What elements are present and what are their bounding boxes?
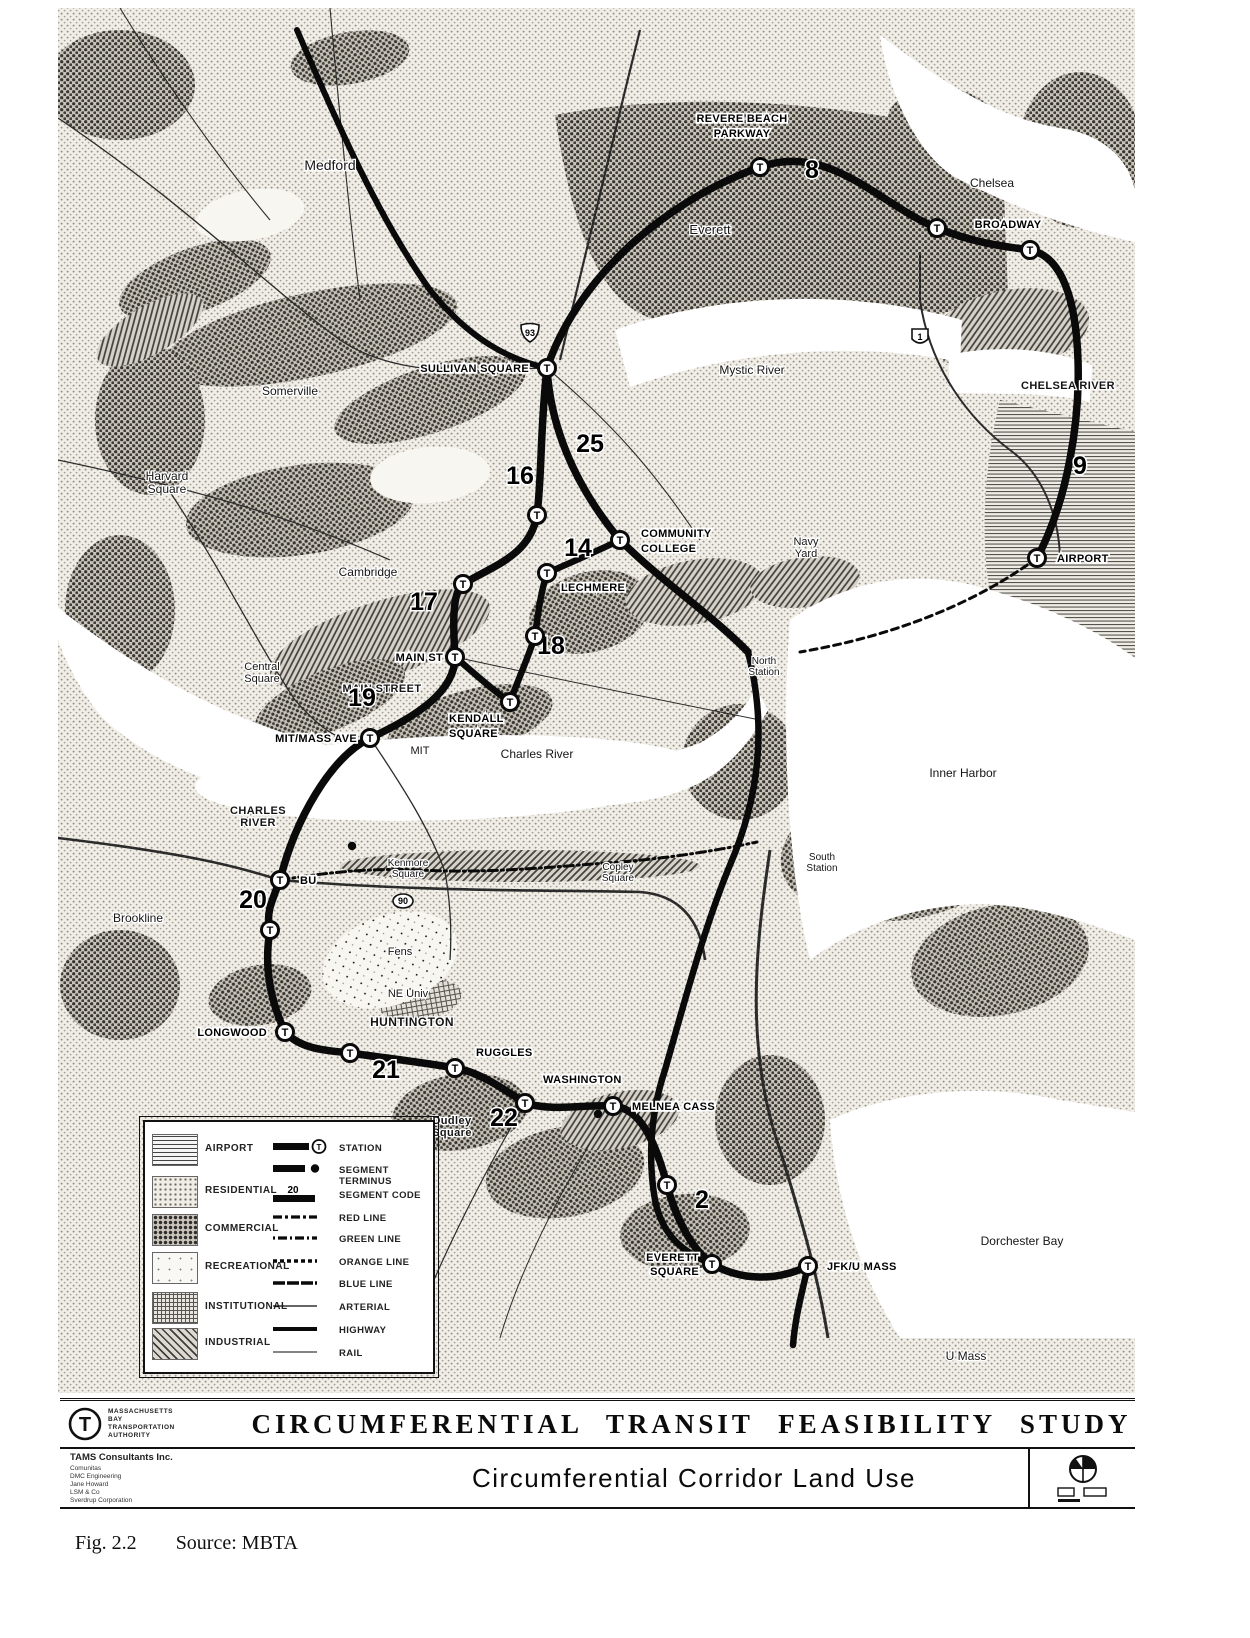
- station-label: EVERETT: [646, 1252, 699, 1264]
- station-t-letter: T: [534, 510, 541, 522]
- station-t-letter: T: [934, 223, 941, 235]
- station: T: [262, 922, 279, 939]
- svg-text:20: 20: [287, 1185, 299, 1196]
- north-arrow-icon: [1068, 1454, 1098, 1484]
- place-label: RIVER: [240, 817, 276, 829]
- station: TJFK/U MASS: [800, 1258, 897, 1275]
- station-label: JFK/U MASS: [827, 1261, 897, 1273]
- station-label: SQUARE: [449, 728, 498, 740]
- station-t-letter: T: [267, 925, 274, 937]
- station-label: AIRPORT: [1057, 553, 1109, 565]
- caption-source: Source: MBTA: [176, 1532, 298, 1554]
- legend-symbol-row: TSTATION: [145, 1138, 433, 1159]
- station-label: RUGGLES: [476, 1047, 533, 1059]
- segment-code: 25: [576, 430, 604, 458]
- segment-code: 22: [490, 1104, 518, 1132]
- segment-code: 16: [506, 462, 534, 490]
- station-label: MELNEA CASS: [632, 1101, 715, 1113]
- place-label: Square: [244, 673, 279, 685]
- station-t-letter: T: [544, 363, 551, 375]
- place-label: Square: [432, 1127, 472, 1139]
- place-label: South: [809, 852, 835, 863]
- land-use-map: MedfordChelseaEverettMystic RiverSomervi…: [58, 8, 1135, 1393]
- consultant-team-member: Sverdrup Corporation: [70, 1497, 360, 1505]
- rail-symbol-icon: [271, 1343, 331, 1363]
- station-t-letter: T: [805, 1261, 812, 1273]
- legend-symbol-row: GREEN LINE: [145, 1229, 433, 1250]
- orange-line-symbol-icon: [271, 1252, 331, 1272]
- segment-code: 9: [1073, 452, 1087, 480]
- place-label: Central: [244, 661, 279, 673]
- station-label: SULLIVAN SQUARE: [420, 363, 529, 375]
- agency-cell: T MASSACHUSETTS BAY TRANSPORTATION AUTHO…: [60, 1401, 248, 1447]
- station: TLONGWOOD: [197, 1024, 293, 1041]
- legend-symbol-label: ORANGE LINE: [339, 1257, 409, 1268]
- legend-symbol-label: GREEN LINE: [339, 1234, 401, 1245]
- station-t-letter: T: [367, 733, 374, 745]
- place-label: Copley: [602, 862, 633, 873]
- place-label: Fens: [388, 946, 413, 958]
- segment-code: 21: [372, 1056, 400, 1084]
- segment-code: 17: [410, 588, 438, 616]
- legend-symbol-label: RED LINE: [339, 1213, 387, 1224]
- station-label: MAIN ST: [396, 652, 443, 664]
- station-t-letter: T: [347, 1048, 354, 1060]
- station-label: KENDALL: [449, 713, 504, 725]
- place-label: Cambridge: [339, 565, 398, 579]
- station-label: COMMUNITY: [641, 528, 712, 540]
- legend-symbol-label: HIGHWAY: [339, 1325, 386, 1336]
- compass-cell: [1028, 1449, 1135, 1507]
- legend-symbol-label: SEGMENT TERMINUS: [339, 1165, 433, 1187]
- station-t-letter: T: [1027, 245, 1034, 257]
- place-label: Somerville: [262, 384, 318, 398]
- segment-code: 19: [348, 684, 376, 712]
- place-label: Kenmore: [388, 858, 429, 869]
- place-label: Brookline: [113, 911, 163, 925]
- place-label: Everett: [689, 222, 731, 237]
- blue-line-symbol-icon: [271, 1274, 331, 1294]
- place-label: Yard: [795, 548, 817, 560]
- station: TMIT/MASS AVE: [275, 730, 378, 747]
- legend-symbol-row: ARTERIAL: [145, 1297, 433, 1318]
- station-t-letter: T: [610, 1101, 617, 1113]
- station-label: MIT/MASS AVE: [275, 733, 357, 745]
- place-label: Dudley: [432, 1115, 472, 1127]
- map-legend: AIRPORTRESIDENTIALCOMMERCIALRECREATIONAL…: [143, 1120, 435, 1374]
- station-t-letter: T: [277, 875, 284, 887]
- station: T: [929, 220, 946, 237]
- place-label: Square: [392, 869, 425, 880]
- scale-bar-icon: [1057, 1487, 1109, 1503]
- legend-symbol-label: BLUE LINE: [339, 1279, 393, 1290]
- station-t-letter: T: [532, 631, 539, 643]
- place-label: MIT: [411, 745, 430, 757]
- consultant-team-member: DMC Engineering: [70, 1473, 360, 1481]
- station: T: [455, 576, 472, 593]
- place-label: Square: [602, 873, 635, 884]
- station-label: PARKWAY: [714, 128, 771, 140]
- place-label: Charles River: [501, 747, 574, 761]
- station: T: [529, 507, 546, 524]
- place-label: CHELSEA RIVER: [1021, 380, 1115, 392]
- figure-caption: Fig. 2.2 Source: MBTA: [75, 1532, 298, 1555]
- highway-symbol-icon: [271, 1320, 331, 1340]
- station-t-letter: T: [282, 1027, 289, 1039]
- station-t-letter: T: [664, 1180, 671, 1192]
- segment-code: 2: [695, 1186, 709, 1214]
- place-label: Navy: [793, 536, 819, 548]
- legend-symbol-row: RED LINE: [145, 1208, 433, 1229]
- consultant-team-list: ComunitasDMC EngineeringJane HowardLSM &…: [70, 1465, 360, 1505]
- station: TMAIN ST: [396, 649, 464, 666]
- consultant-team-member: LSM & Co: [70, 1489, 360, 1497]
- route-shield: 1: [912, 329, 928, 343]
- green-line-symbol-icon: [271, 1229, 331, 1249]
- place-label: U Mass: [946, 1349, 987, 1363]
- station-label: REVERE BEACH: [696, 113, 787, 125]
- legend-symbol-row: SEGMENT TERMINUS: [145, 1160, 433, 1181]
- red-line-symbol-icon: [271, 1208, 331, 1228]
- station-t-letter: T: [544, 568, 551, 580]
- segment-code: 8: [805, 156, 819, 184]
- consultant-team-member: Jane Howard: [70, 1481, 360, 1489]
- station-label: LONGWOOD: [197, 1027, 267, 1039]
- place-label: Chelsea: [970, 176, 1014, 190]
- place-label: Mystic River: [719, 363, 784, 377]
- place-label: Square: [148, 482, 187, 496]
- place-label: CHARLES: [230, 805, 286, 817]
- legend-symbol-label: STATION: [339, 1143, 382, 1154]
- station-label: BU: [300, 875, 317, 887]
- legend-symbol-label: SEGMENT CODE: [339, 1190, 421, 1201]
- route-shield-number: 93: [525, 328, 535, 338]
- svg-text:T: T: [317, 1143, 322, 1152]
- station-t-letter: T: [452, 652, 459, 664]
- legend-symbol-label: ARTERIAL: [339, 1302, 390, 1313]
- segment-code: 14: [564, 534, 592, 562]
- caption-figure-number: Fig. 2.2: [75, 1532, 137, 1554]
- station-t-letter: T: [460, 579, 467, 591]
- arterial-symbol-icon: [271, 1297, 331, 1317]
- station: T: [527, 628, 544, 645]
- agency-name: MASSACHUSETTS BAY TRANSPORTATION AUTHORI…: [108, 1408, 175, 1440]
- station-t-letter: T: [1034, 553, 1041, 565]
- place-label: HUNTINGTON: [370, 1015, 454, 1029]
- route-shield-number: 90: [398, 896, 408, 906]
- route-shield-number: 1: [917, 332, 922, 342]
- station-label: WASHINGTON: [543, 1074, 622, 1086]
- title-block: T MASSACHUSETTS BAY TRANSPORTATION AUTHO…: [60, 1398, 1135, 1509]
- segment-terminus-dot: [594, 1110, 602, 1118]
- place-label: Medford: [304, 157, 355, 173]
- station-t-letter: T: [452, 1063, 459, 1075]
- station-t-letter: T: [507, 697, 514, 709]
- terminus-symbol-icon: [271, 1160, 331, 1180]
- station-t-letter: T: [522, 1098, 529, 1110]
- legend-symbol-row: HIGHWAY: [145, 1320, 433, 1341]
- station-label: LECHMERE: [561, 582, 625, 594]
- station: T: [659, 1177, 676, 1194]
- legend-symbol-row: RAIL: [145, 1343, 433, 1364]
- station-label: BROADWAY: [975, 219, 1042, 231]
- route-shield: 90: [393, 894, 413, 908]
- legend-symbol-row: BLUE LINE: [145, 1274, 433, 1295]
- station: T: [342, 1045, 359, 1062]
- place-label: Station: [806, 863, 837, 874]
- place-label: Inner Harbor: [929, 766, 996, 780]
- legend-symbol-label: RAIL: [339, 1348, 363, 1359]
- study-title: CIRCUMFERENTIAL TRANSIT FEASIBILITY STUD…: [248, 1401, 1135, 1447]
- station-symbol-icon: T: [271, 1138, 331, 1158]
- legend-symbol-row: ORANGE LINE: [145, 1252, 433, 1273]
- station: TAIRPORT: [1029, 550, 1109, 567]
- consultant-lead: TAMS Consultants Inc.: [70, 1452, 360, 1463]
- place-label: Station: [748, 667, 779, 678]
- station-label: COLLEGE: [641, 543, 696, 555]
- segment-code-symbol-icon: 20: [271, 1185, 331, 1205]
- consultants-cell: TAMS Consultants Inc. ComunitasDMC Engin…: [60, 1449, 360, 1507]
- place-label: North: [752, 656, 776, 667]
- station-t-letter: T: [617, 535, 624, 547]
- map-title: Circumferential Corridor Land Use: [360, 1449, 1028, 1507]
- mbta-logo-icon: T: [68, 1407, 102, 1441]
- segment-code: 20: [239, 886, 267, 914]
- segment-terminus-dot: [348, 842, 356, 850]
- station-t-letter: T: [709, 1259, 716, 1271]
- station-label: SQUARE: [650, 1266, 699, 1278]
- consultant-team-member: Comunitas: [70, 1465, 360, 1473]
- svg-text:T: T: [79, 1414, 91, 1436]
- place-label: NE Univ: [388, 988, 429, 1000]
- station-t-letter: T: [757, 162, 764, 174]
- place-label: Dorchester Bay: [981, 1234, 1064, 1248]
- legend-symbol-row: 20SEGMENT CODE: [145, 1185, 433, 1206]
- place-label: Harvard: [146, 469, 189, 483]
